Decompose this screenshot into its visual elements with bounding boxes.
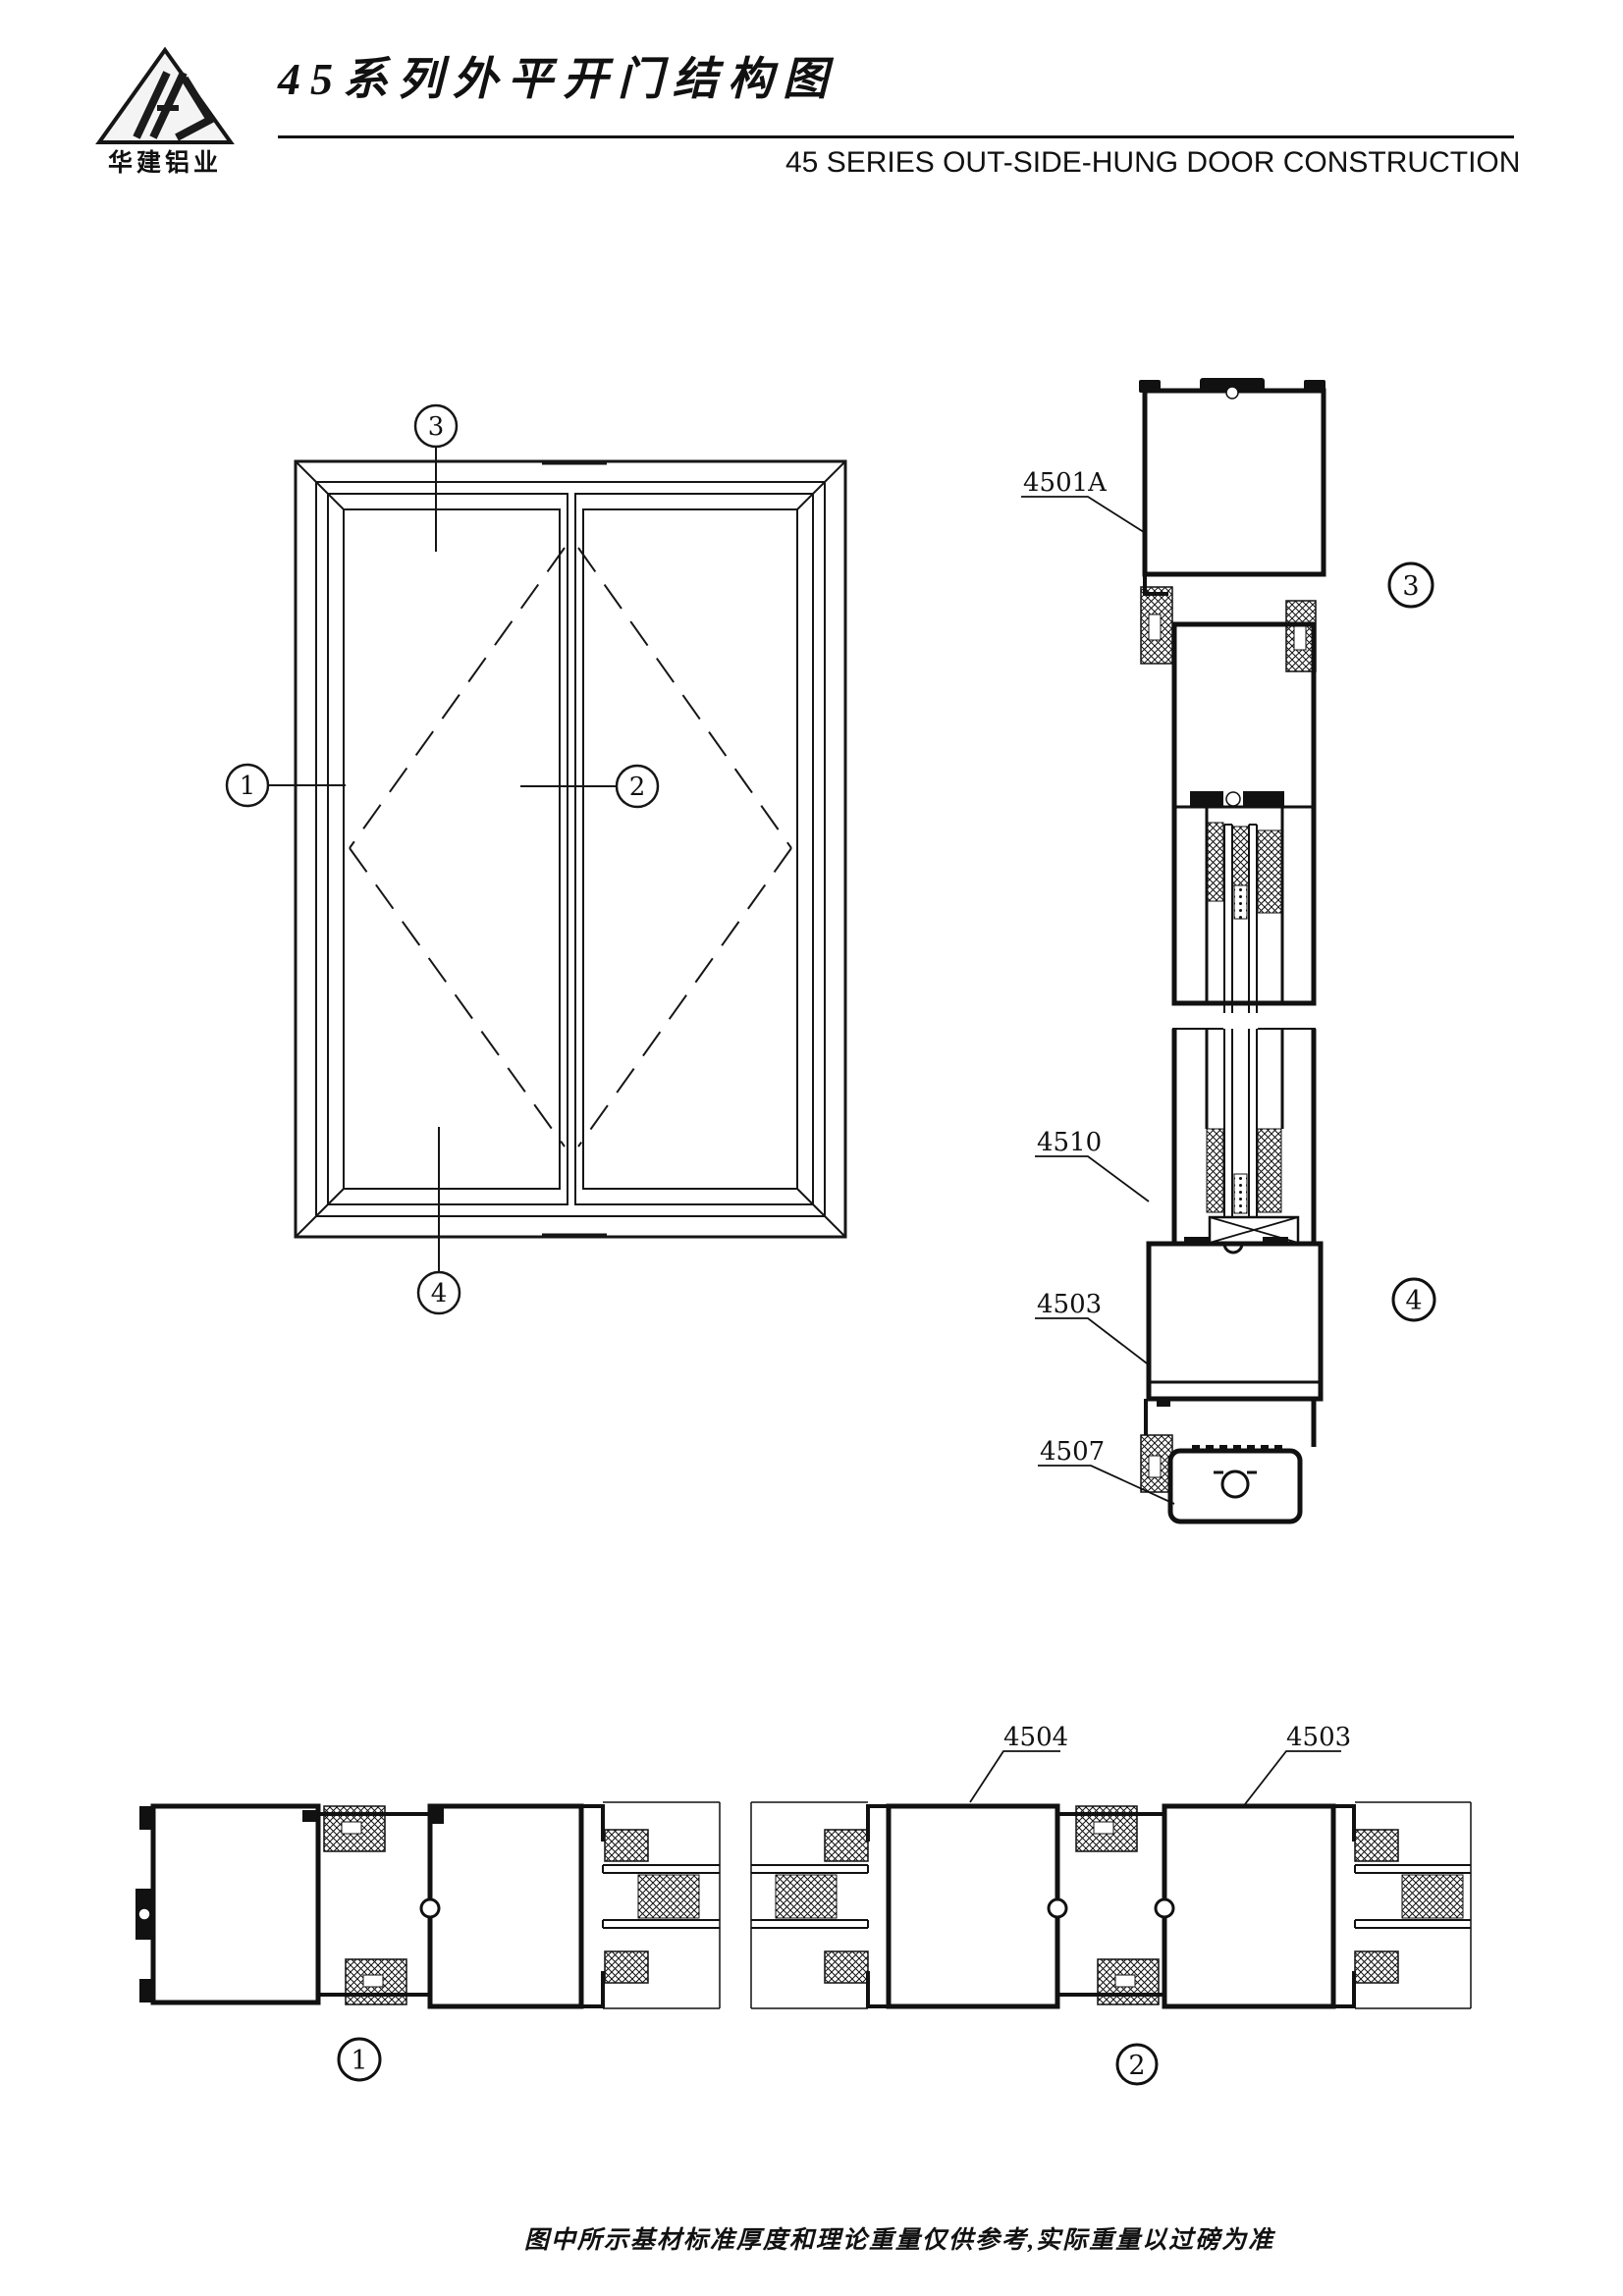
sash-bottom-assembly	[1141, 1029, 1321, 1522]
sash-top-profile	[1172, 624, 1316, 1003]
elevation-callouts: 3 1 2 4	[227, 405, 658, 1313]
threshold-profile-4507	[1170, 1445, 1300, 1522]
glass-unit-right	[1355, 1865, 1471, 1928]
detail-2-number: 2	[1128, 2051, 1145, 2081]
frame-head-profile	[1139, 378, 1325, 594]
sash-stile-profile	[421, 1806, 581, 2006]
glass-unit-left	[751, 1865, 868, 1928]
callout-2-number: 2	[629, 773, 646, 802]
glazing-wedge	[605, 1951, 648, 1983]
glazing-wedge	[825, 1951, 868, 1983]
right-leaf-inner	[583, 509, 797, 1189]
glazing-wedge	[1355, 1951, 1398, 1983]
drawing-canvas: 3 1 2 4	[0, 0, 1623, 2296]
label-4503-horizontal: 4503	[1286, 1723, 1351, 1752]
glass-unit-lower	[1207, 1029, 1281, 1239]
label-4507: 4507	[1040, 1437, 1105, 1467]
glazing-wedge	[1355, 1830, 1398, 1861]
frame-outer	[296, 461, 845, 1237]
glazing-wedge	[825, 1830, 868, 1861]
footer-note: 图中所示基材标准厚度和理论重量仅供参考,实际重量以过磅为准	[320, 2220, 1479, 2256]
vertical-section: 4501A 4510 4503 4507 3 4	[1021, 378, 1434, 1522]
meeting-stile-right-4503	[1156, 1806, 1333, 2006]
detail-1-number: 1	[351, 2046, 367, 2076]
glazing-gasket	[1207, 823, 1223, 901]
meeting-stile-left-4504	[889, 1806, 1066, 2006]
vertical-section-details: 3 4	[1389, 563, 1434, 1320]
right-leaf-outer	[575, 494, 813, 1204]
sash-bottom-rail-4503	[1146, 1237, 1321, 1447]
frame-jamb-profile	[135, 1806, 318, 2002]
frame-inner	[316, 482, 825, 1216]
detail-4-number: 4	[1405, 1286, 1422, 1316]
door-elevation: 3 1 2 4	[227, 405, 845, 1313]
left-leaf-outer	[328, 494, 568, 1204]
left-leaf-inner	[344, 509, 560, 1189]
glass-unit	[603, 1865, 720, 1928]
horizontal-section-1: 1	[135, 1802, 720, 2080]
glazing-gasket	[1258, 830, 1281, 913]
label-4510: 4510	[1037, 1128, 1102, 1157]
detail-3-number: 3	[1402, 571, 1419, 602]
horizontal-section-2: 4504 4503 2	[751, 1723, 1471, 2084]
glazing-wedge	[605, 1830, 648, 1861]
callout-3-number: 3	[428, 412, 445, 442]
label-4501A: 4501A	[1023, 468, 1108, 498]
drawing-sheet: 华建铝业 45系列外平开门结构图 45 SERIES OUT-SIDE-HUNG…	[0, 0, 1623, 2296]
horizontal-section-labels: 4504 4503	[970, 1723, 1351, 1804]
label-4503-vertical: 4503	[1037, 1290, 1102, 1319]
callout-4-number: 4	[431, 1279, 448, 1308]
label-4504: 4504	[1003, 1723, 1068, 1752]
opening-indicator	[350, 548, 791, 1147]
callout-1-number: 1	[240, 772, 256, 801]
